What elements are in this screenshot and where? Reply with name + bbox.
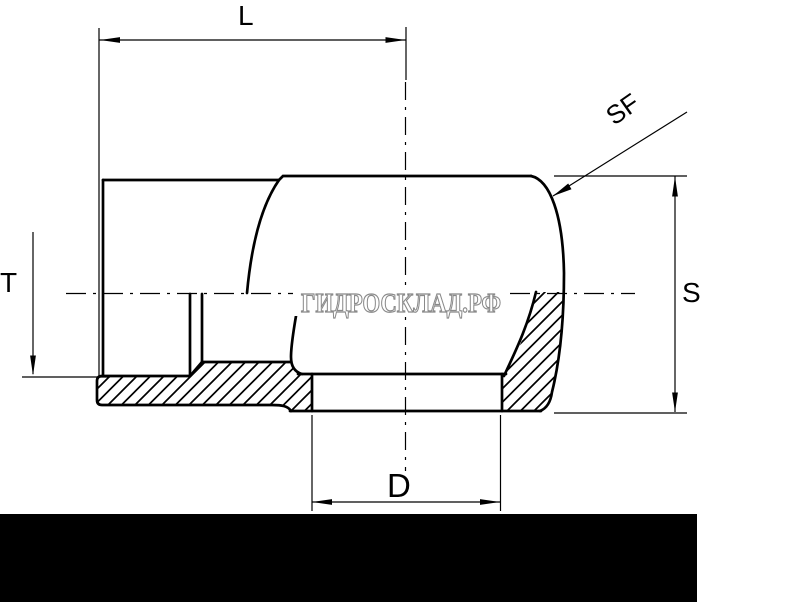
svg-text:T: T [0,267,17,298]
svg-text:ГИДРОСКЛАД.РФ: ГИДРОСКЛАД.РФ [301,288,501,318]
svg-text:S: S [682,277,701,308]
svg-text:L: L [238,0,254,31]
svg-text:D: D [387,467,411,504]
svg-text:SF: SF [600,87,644,131]
